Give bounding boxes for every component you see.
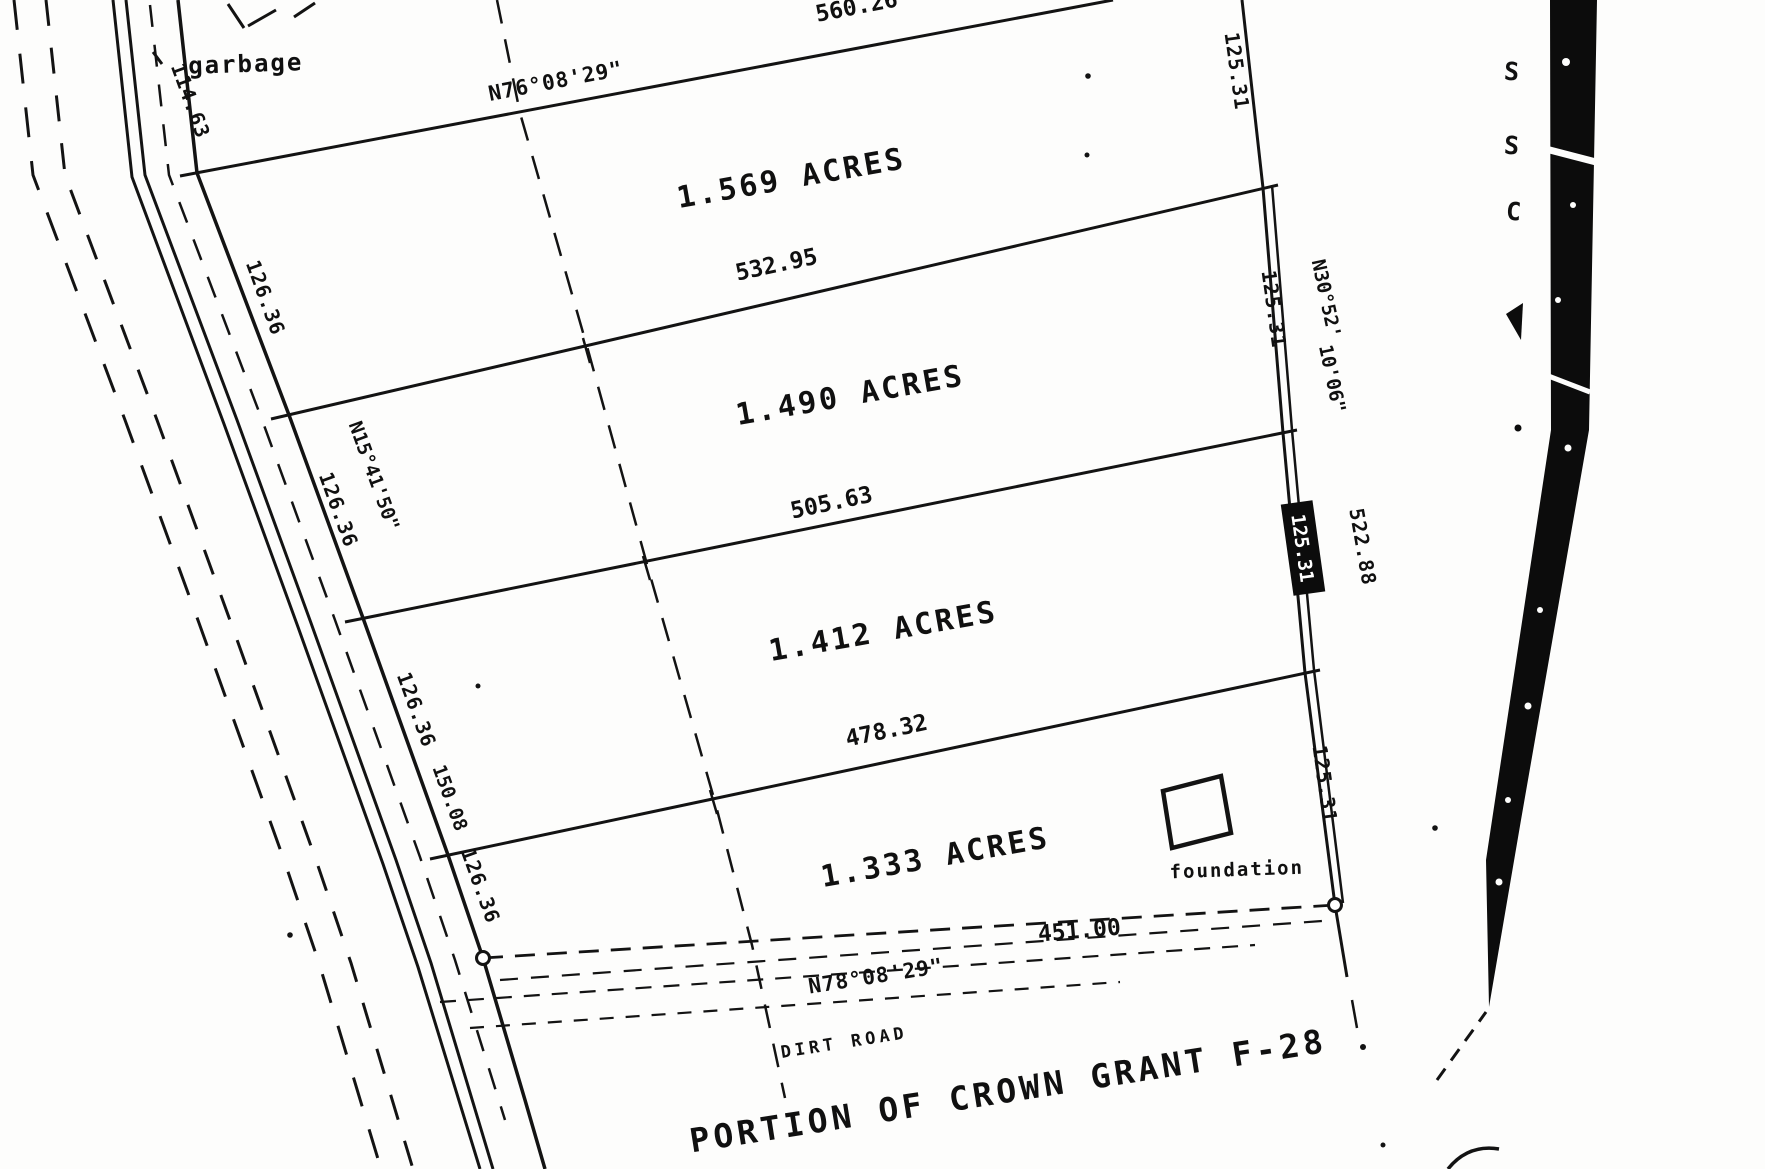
speck [476, 684, 481, 689]
dim-south: 451.00 [1037, 914, 1122, 947]
survey-node [477, 952, 490, 965]
dim-line-1: 532.95 [733, 244, 820, 287]
margin-letter-3: C [1505, 197, 1522, 227]
foundation-outline [1163, 776, 1231, 848]
dirt-road-dash-line [470, 982, 1120, 1028]
road-frontage-dim-1: 126.36 [241, 257, 290, 339]
road-extra-dim: 150.08 [428, 762, 472, 834]
road-outer-dash-line [46, 0, 413, 1169]
margin-letter-1: S [1503, 57, 1520, 87]
east-boundary-line [1242, 0, 1347, 977]
speck [1085, 153, 1090, 158]
survey-plat-page: garbage foundation DIRT ROAD PORTION OF … [0, 0, 1765, 1169]
scan-bar-speckle [1505, 797, 1511, 803]
scan-bar-speckle [1565, 445, 1572, 452]
main-road [14, 0, 545, 1169]
east-bearing-line2: 10'06" [1314, 343, 1350, 415]
corner-curve [1448, 1148, 1499, 1169]
parcel-line-north [180, 0, 1113, 176]
east-total-dim: 522.88 [1344, 506, 1381, 587]
parcel-acreage-2: 1.490 ACRES [733, 358, 967, 433]
road-frontage-dim-3: 126.36 [392, 669, 441, 751]
scan-bar-speckle [1537, 607, 1543, 613]
bearing-south: N78°08'29" [807, 954, 946, 999]
east-dim-3-inverse: 125.31 [1281, 500, 1325, 596]
garbage-label: garbage [188, 48, 304, 80]
crease-dashes [1437, 1012, 1486, 1080]
road-frontage-line [178, 0, 545, 1169]
parcel-line-2 [345, 430, 1297, 622]
east-dim-4: 125.31 [1308, 744, 1343, 825]
stray-dash [294, 3, 315, 17]
speck [1360, 1044, 1366, 1050]
stray-dash [228, 4, 244, 28]
interior-dashed-line [497, 0, 785, 1098]
parcel-acreage-1: 1.569 ACRES [674, 141, 908, 216]
plat-svg: garbage foundation DIRT ROAD PORTION OF … [0, 0, 1765, 1169]
margin-dot [1515, 425, 1522, 432]
parcel-line-3 [430, 670, 1320, 859]
stray-dash [248, 10, 276, 26]
margin-letter-2: S [1503, 131, 1520, 161]
speck [1381, 1143, 1386, 1148]
speck [1432, 825, 1438, 831]
scan-bar-speckle [1525, 703, 1532, 710]
east-boundary-dash [1352, 1000, 1357, 1028]
dirt-road-label: DIRT ROAD [779, 1023, 909, 1063]
parcel-acreage-4: 1.333 ACRES [818, 820, 1052, 895]
dim-line-3: 478.32 [843, 710, 930, 753]
speck [287, 932, 293, 938]
margin-wedge-mark [1506, 303, 1523, 340]
speck [1085, 73, 1091, 79]
scan-bar-speckle [1562, 58, 1570, 66]
road-frontage-dim-4: 126.36 [456, 845, 505, 927]
east-dim-1: 125.31 [1220, 31, 1255, 112]
parcel-line-1 [271, 185, 1278, 419]
survey-node [1329, 899, 1342, 912]
scan-bar-speckle [1496, 879, 1503, 886]
scan-edge-artifact [1437, 0, 1597, 1169]
east-bearing-line1: N30°52' [1307, 257, 1345, 340]
bearing-north: N76°08'29" [486, 56, 625, 106]
scan-bar-speckle [1555, 297, 1561, 303]
scan-bar-speckle [1570, 202, 1576, 208]
foundation-label: foundation [1169, 857, 1304, 884]
parcel-acreage-3: 1.412 ACRES [766, 594, 1000, 669]
east-dim-2: 125.31 [1257, 269, 1292, 350]
dim-north-cut: 560.26 [813, 0, 900, 28]
road-frontage-dim-2: 126.36 [314, 469, 363, 551]
